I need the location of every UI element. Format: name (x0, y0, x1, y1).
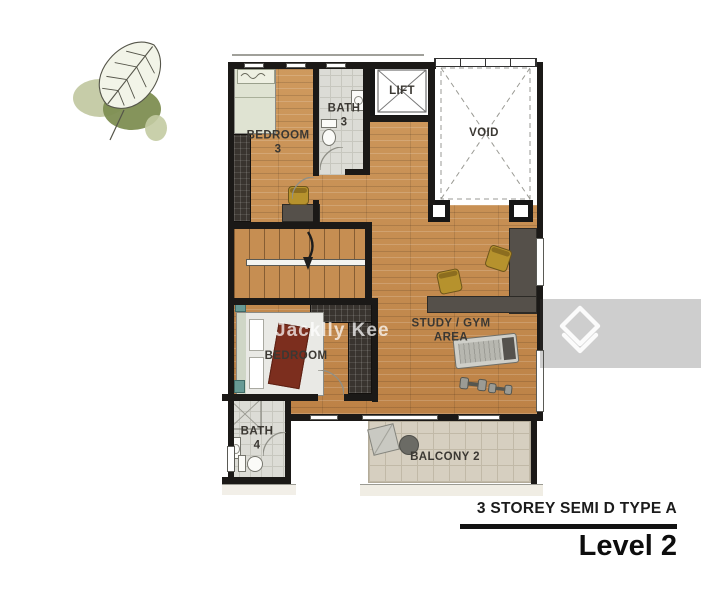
wall (344, 394, 378, 401)
footer-divider (460, 524, 677, 529)
floorplan-page: BEDROOM 3 BATH 3 LIFT VOID BEDROOM STUDY… (0, 0, 701, 600)
window (458, 415, 500, 420)
room-label-bath3: BATH 3 (328, 102, 361, 131)
level-label: Level 2 (579, 530, 677, 563)
door-arc (318, 370, 344, 395)
wall (365, 222, 372, 305)
room-label-study-gym: STUDY / GYM AREA (412, 317, 491, 346)
chair-icon (436, 268, 463, 295)
wall (228, 222, 372, 229)
chevron-house-logo-icon (552, 303, 608, 361)
toilet-icon (247, 456, 263, 472)
wall (370, 116, 434, 122)
wall (428, 62, 435, 205)
stair-direction-arrow-icon (296, 230, 320, 272)
wall (228, 62, 234, 484)
study-desk-icon (427, 296, 537, 313)
nightstand-icon (234, 380, 245, 393)
portal-watermark-band (540, 299, 701, 368)
sliding-door (362, 415, 438, 420)
window (227, 446, 235, 472)
wall (222, 394, 318, 401)
wall (372, 298, 378, 402)
room-label-bath4: BATH 4 (241, 425, 274, 454)
room-label-balcony2: BALCONY 2 (410, 450, 480, 464)
room-label-void: VOID (469, 126, 499, 140)
door-arc (320, 147, 344, 170)
window (536, 238, 544, 286)
room-label-bedroom3: BEDROOM 3 (247, 129, 310, 158)
room-label-bedroom2: BEDROOM (265, 349, 328, 363)
balcony-edge (360, 484, 543, 496)
window (310, 415, 338, 420)
toilet-icon (322, 129, 336, 146)
room-label-lift: LIFT (389, 84, 415, 98)
toilet-tank (238, 455, 246, 472)
door-arc (292, 177, 314, 199)
wall (313, 62, 319, 176)
dumbbells-icon (457, 369, 516, 403)
roofline (232, 54, 424, 56)
plan-type-label: 3 STOREY SEMI D TYPE A (477, 500, 677, 518)
wall (363, 62, 370, 175)
photographer-watermark: Jacklly Kee (275, 320, 390, 342)
bed-icon (234, 66, 276, 134)
window (326, 63, 346, 68)
window (244, 63, 264, 68)
window-band (434, 58, 537, 67)
wall (228, 298, 378, 305)
wall (531, 421, 537, 484)
window (286, 63, 306, 68)
wall (222, 477, 291, 484)
outer-edge (222, 484, 296, 495)
column (509, 200, 533, 222)
wall (345, 169, 370, 175)
